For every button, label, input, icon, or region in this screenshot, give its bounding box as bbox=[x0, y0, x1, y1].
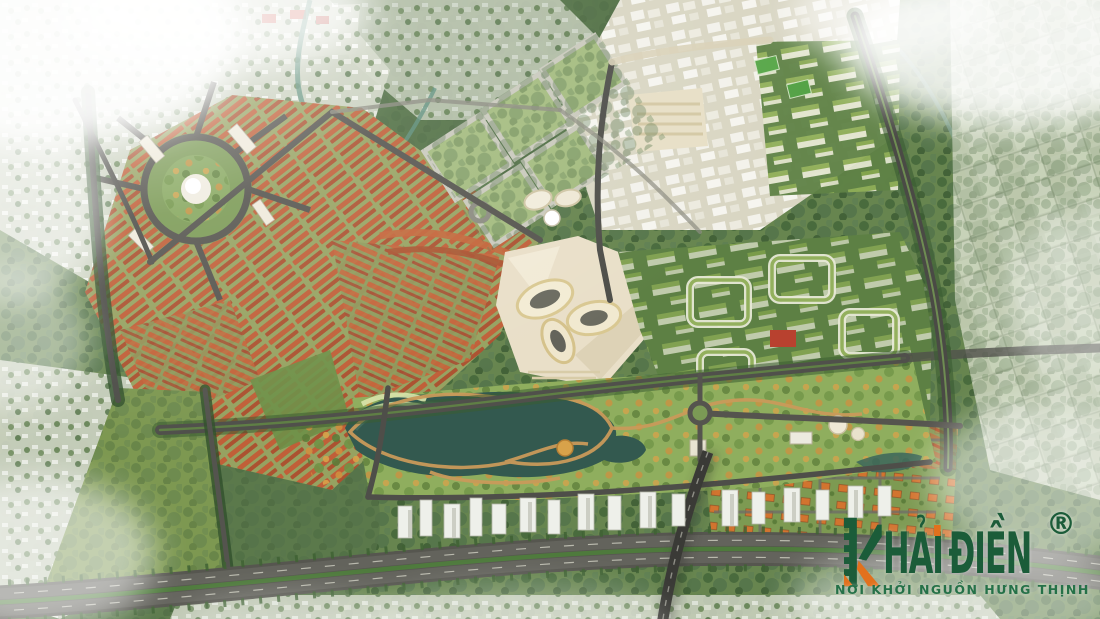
khai-dien-logo: HẢIĐIỀN ® NƠI KHỞI NGUỒN HƯNG THỊNH bbox=[828, 512, 1088, 607]
aerial-masterplan-rendering: HẢIĐIỀN ® NƠI KHỞI NGUỒN HƯNG THỊNH bbox=[0, 0, 1100, 619]
brand-text-tail: ĐIỀN bbox=[949, 521, 1032, 587]
logo-k-mark bbox=[830, 516, 882, 588]
brand-name-text: HẢIĐIỀN bbox=[883, 526, 1031, 583]
brand-tagline: NƠI KHỞI NGUỒN HƯNG THỊNH bbox=[835, 582, 1090, 597]
registered-trademark-symbol: ® bbox=[1046, 510, 1076, 540]
brand-text-head: HẢ bbox=[883, 521, 932, 587]
brand-text-i: I bbox=[932, 526, 943, 583]
